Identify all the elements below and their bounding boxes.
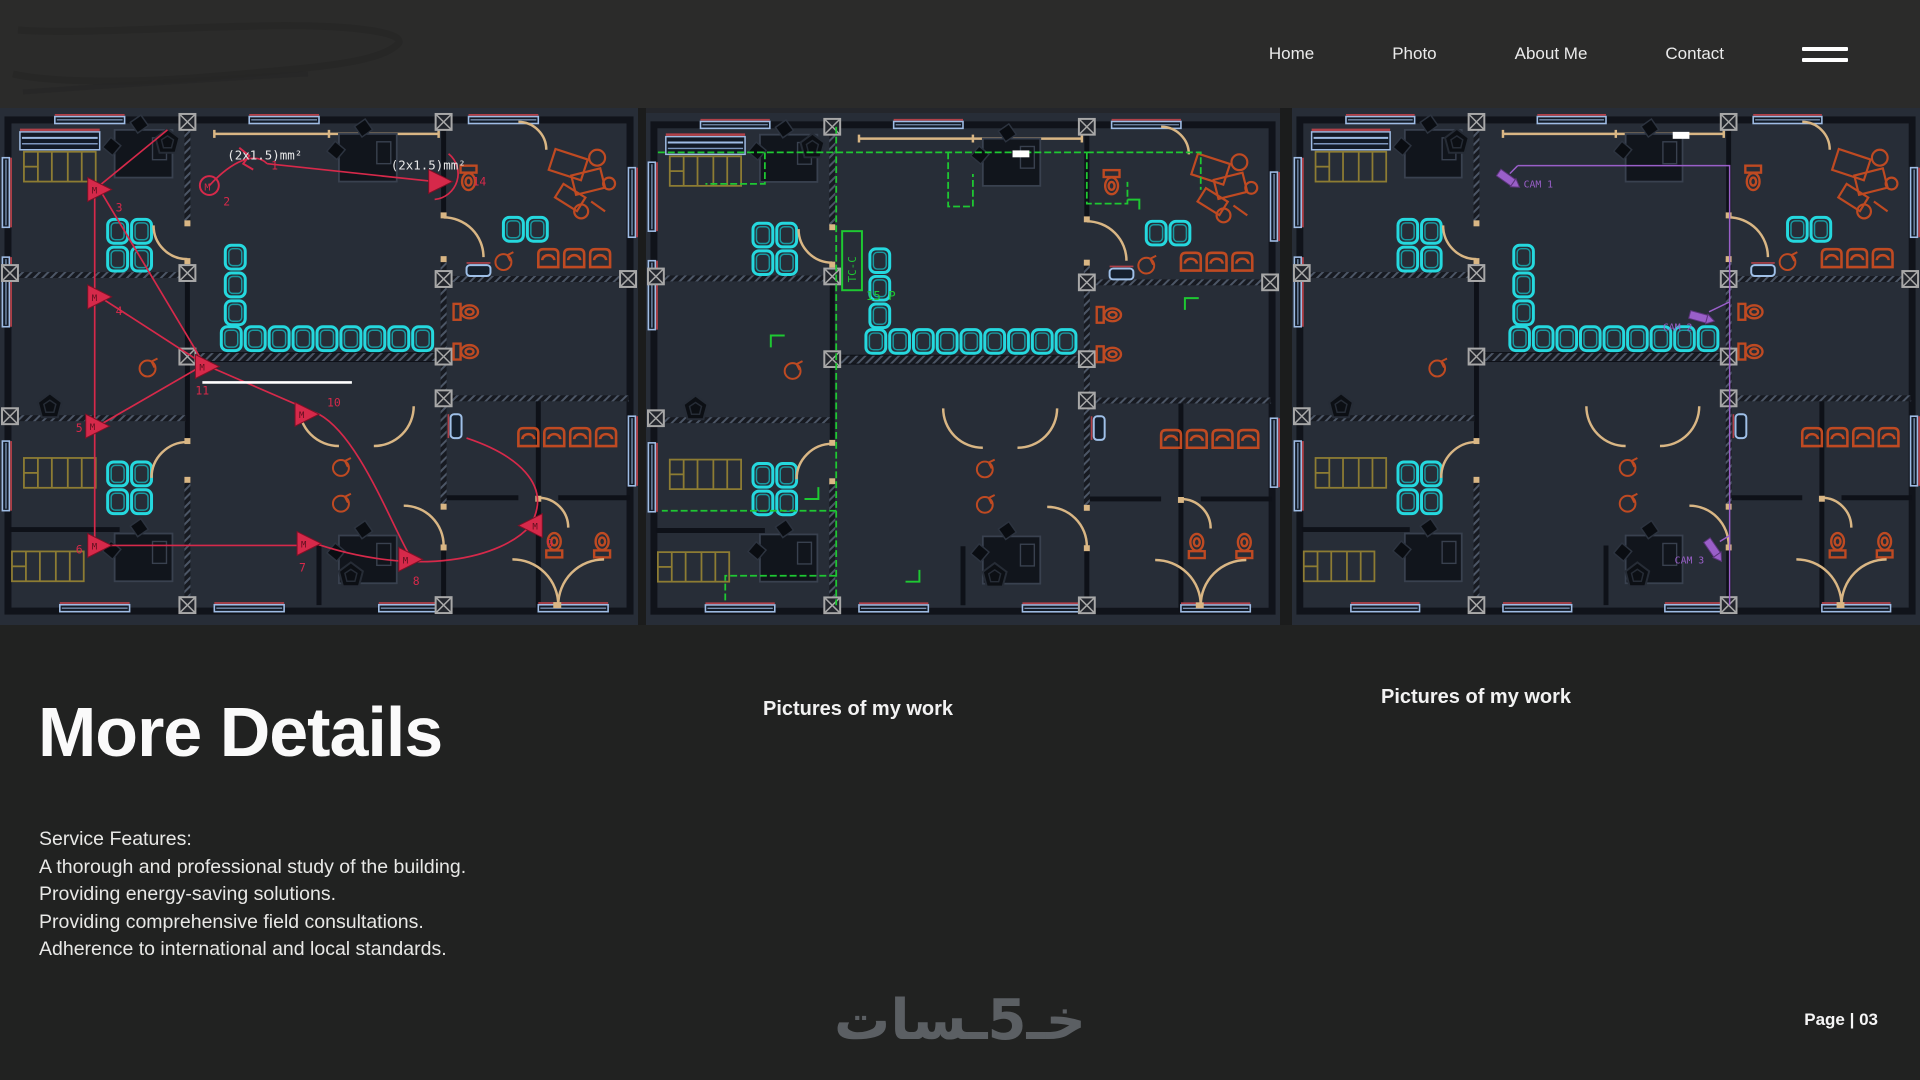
svg-text:11: 11 xyxy=(195,383,209,397)
portfolio-plans-strip: M (2x1.5)mm² (2x1.5)mm² 1 2 3 4 5 6 xyxy=(0,108,1920,625)
service-features-text: Service Features: A thorough and profess… xyxy=(39,826,466,964)
selection-highlight xyxy=(1673,132,1690,139)
svg-text:4: 4 xyxy=(116,304,123,318)
svg-text:M: M xyxy=(532,523,537,533)
svg-text:3: 3 xyxy=(116,200,123,214)
page: Home Photo About Me Contact xyxy=(0,0,1920,1080)
selection-highlight xyxy=(1013,150,1030,157)
feature-line: Adherence to international and local sta… xyxy=(39,936,466,964)
feature-line: A thorough and professional study of the… xyxy=(39,854,466,882)
svg-text:9: 9 xyxy=(546,536,553,550)
header-bar: Home Photo About Me Contact xyxy=(0,0,1920,110)
hamburger-menu-icon[interactable] xyxy=(1802,41,1848,68)
wire-spec-label: (2x1.5)mm² xyxy=(391,158,466,173)
nav-link-about[interactable]: About Me xyxy=(1515,44,1588,64)
nav-link-home[interactable]: Home xyxy=(1269,44,1314,64)
hamburger-bar xyxy=(1802,47,1848,51)
floor-plan-conduit-image[interactable]: TC-C 15 P xyxy=(646,108,1280,625)
work-caption-left: Pictures of my work xyxy=(763,698,953,721)
svg-text:6: 6 xyxy=(76,542,83,556)
svg-text:1: 1 xyxy=(271,159,278,173)
nav-link-contact[interactable]: Contact xyxy=(1665,44,1724,64)
svg-text:CAM 1: CAM 1 xyxy=(1524,179,1554,190)
watermark-logo: خـ5ـسات xyxy=(0,988,1920,1053)
svg-text:M: M xyxy=(403,556,408,566)
svg-text:2: 2 xyxy=(223,194,230,208)
svg-text:M: M xyxy=(301,540,306,550)
svg-text:M: M xyxy=(92,542,97,552)
wire-spec-label: (2x1.5)mm² xyxy=(227,148,302,163)
hamburger-bar xyxy=(1802,58,1848,62)
svg-text:M: M xyxy=(299,411,304,421)
work-caption-right: Pictures of my work xyxy=(1381,686,1571,709)
page-number: Page | 03 xyxy=(1804,1010,1878,1030)
svg-text:7: 7 xyxy=(299,560,306,574)
panel-board-label: TC-C xyxy=(846,256,859,282)
svg-text:14: 14 xyxy=(473,175,487,189)
faint-logo xyxy=(8,4,478,99)
svg-text:M: M xyxy=(92,187,97,197)
feature-line: Providing energy-saving solutions. xyxy=(39,881,466,909)
svg-text:5: 5 xyxy=(76,421,83,435)
svg-text:CAM 2: CAM 2 xyxy=(1663,323,1693,334)
svg-text:8: 8 xyxy=(413,574,420,588)
svg-text:10: 10 xyxy=(327,395,341,409)
features-title: Service Features: xyxy=(39,826,466,854)
feature-line: Providing comprehensive field consultati… xyxy=(39,909,466,937)
nav-link-photo[interactable]: Photo xyxy=(1392,44,1436,64)
svg-text:CAM 3: CAM 3 xyxy=(1675,555,1705,566)
svg-text:M: M xyxy=(90,423,95,433)
floor-plan-electrical-image[interactable]: M (2x1.5)mm² (2x1.5)mm² 1 2 3 4 5 6 xyxy=(0,108,638,625)
main-nav: Home Photo About Me Contact xyxy=(1269,0,1920,108)
section-heading: More Details xyxy=(38,692,442,772)
svg-text:M: M xyxy=(92,294,97,304)
breaker-label: 15 P xyxy=(866,289,896,303)
floor-plan-cctv-image[interactable]: CAM 1 CAM 2 CAM 3 xyxy=(1292,108,1920,625)
svg-text:M: M xyxy=(199,363,204,373)
svg-text:M: M xyxy=(204,183,210,194)
